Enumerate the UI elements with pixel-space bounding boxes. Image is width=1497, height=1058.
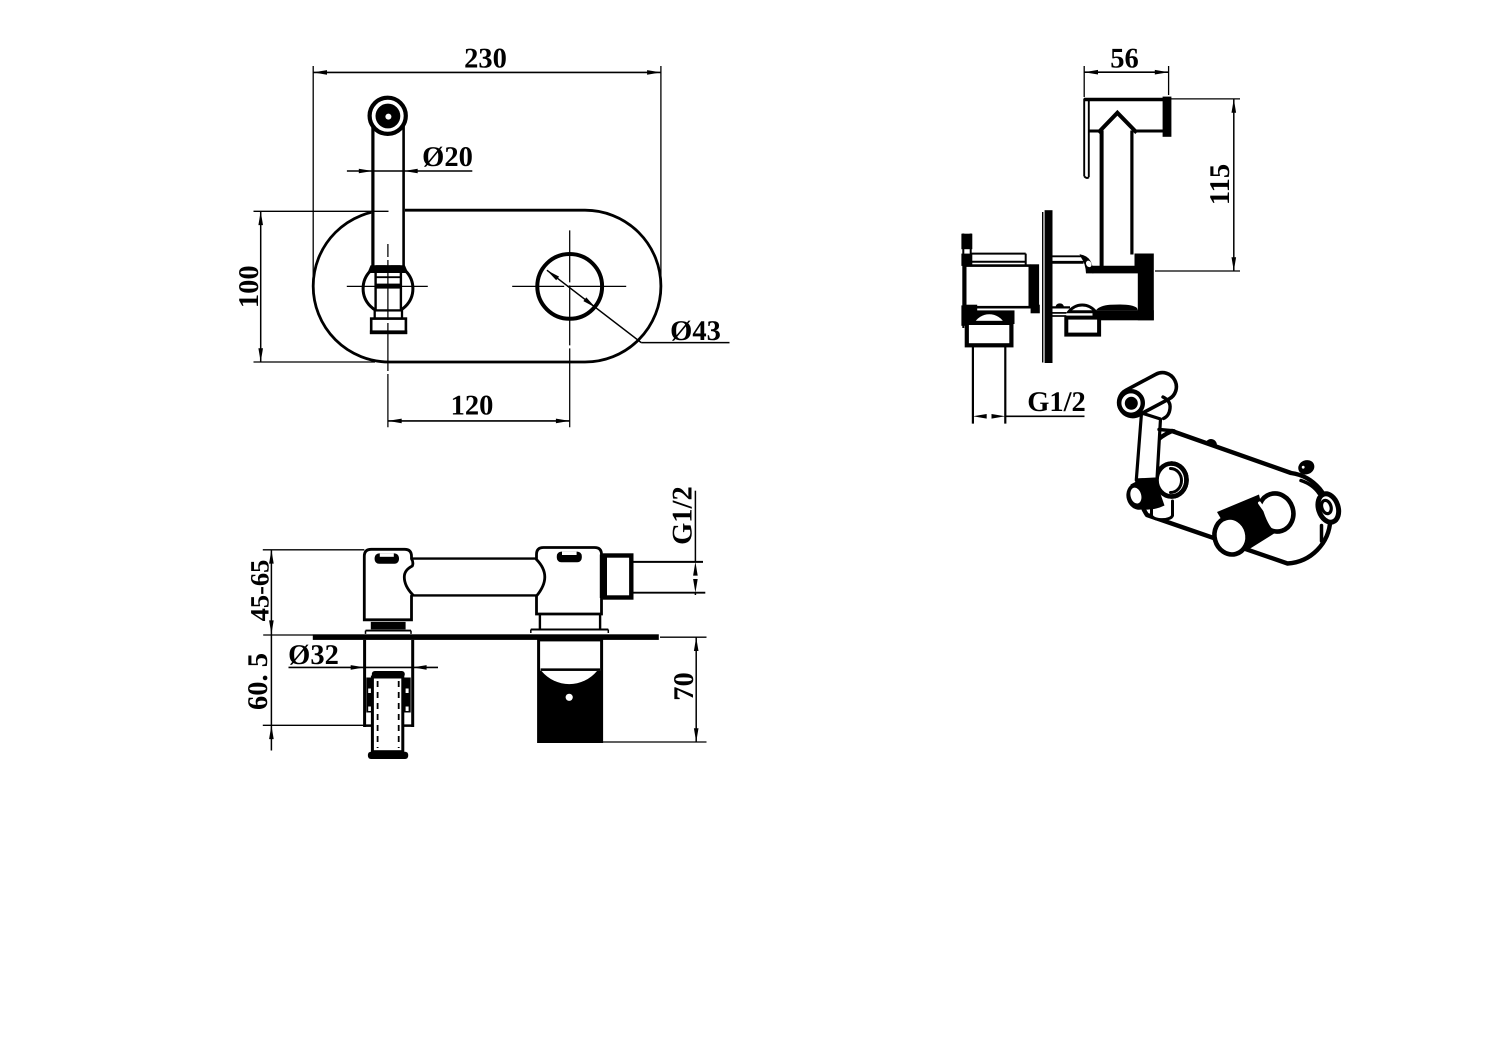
svg-text:G1/2: G1/2 <box>668 486 699 545</box>
svg-text:45-65: 45-65 <box>244 560 274 622</box>
svg-text:100: 100 <box>234 265 265 308</box>
svg-text:Ø20: Ø20 <box>422 142 473 173</box>
svg-text:120: 120 <box>451 390 494 421</box>
svg-text:230: 230 <box>464 44 507 75</box>
svg-text:G1/2: G1/2 <box>1027 387 1086 418</box>
svg-text:56: 56 <box>1110 43 1139 74</box>
svg-text:Ø43: Ø43 <box>670 316 721 347</box>
svg-text:70: 70 <box>669 672 700 701</box>
svg-text:Ø32: Ø32 <box>288 640 339 671</box>
svg-text:115: 115 <box>1205 164 1236 205</box>
svg-text:60. 5: 60. 5 <box>243 653 274 710</box>
